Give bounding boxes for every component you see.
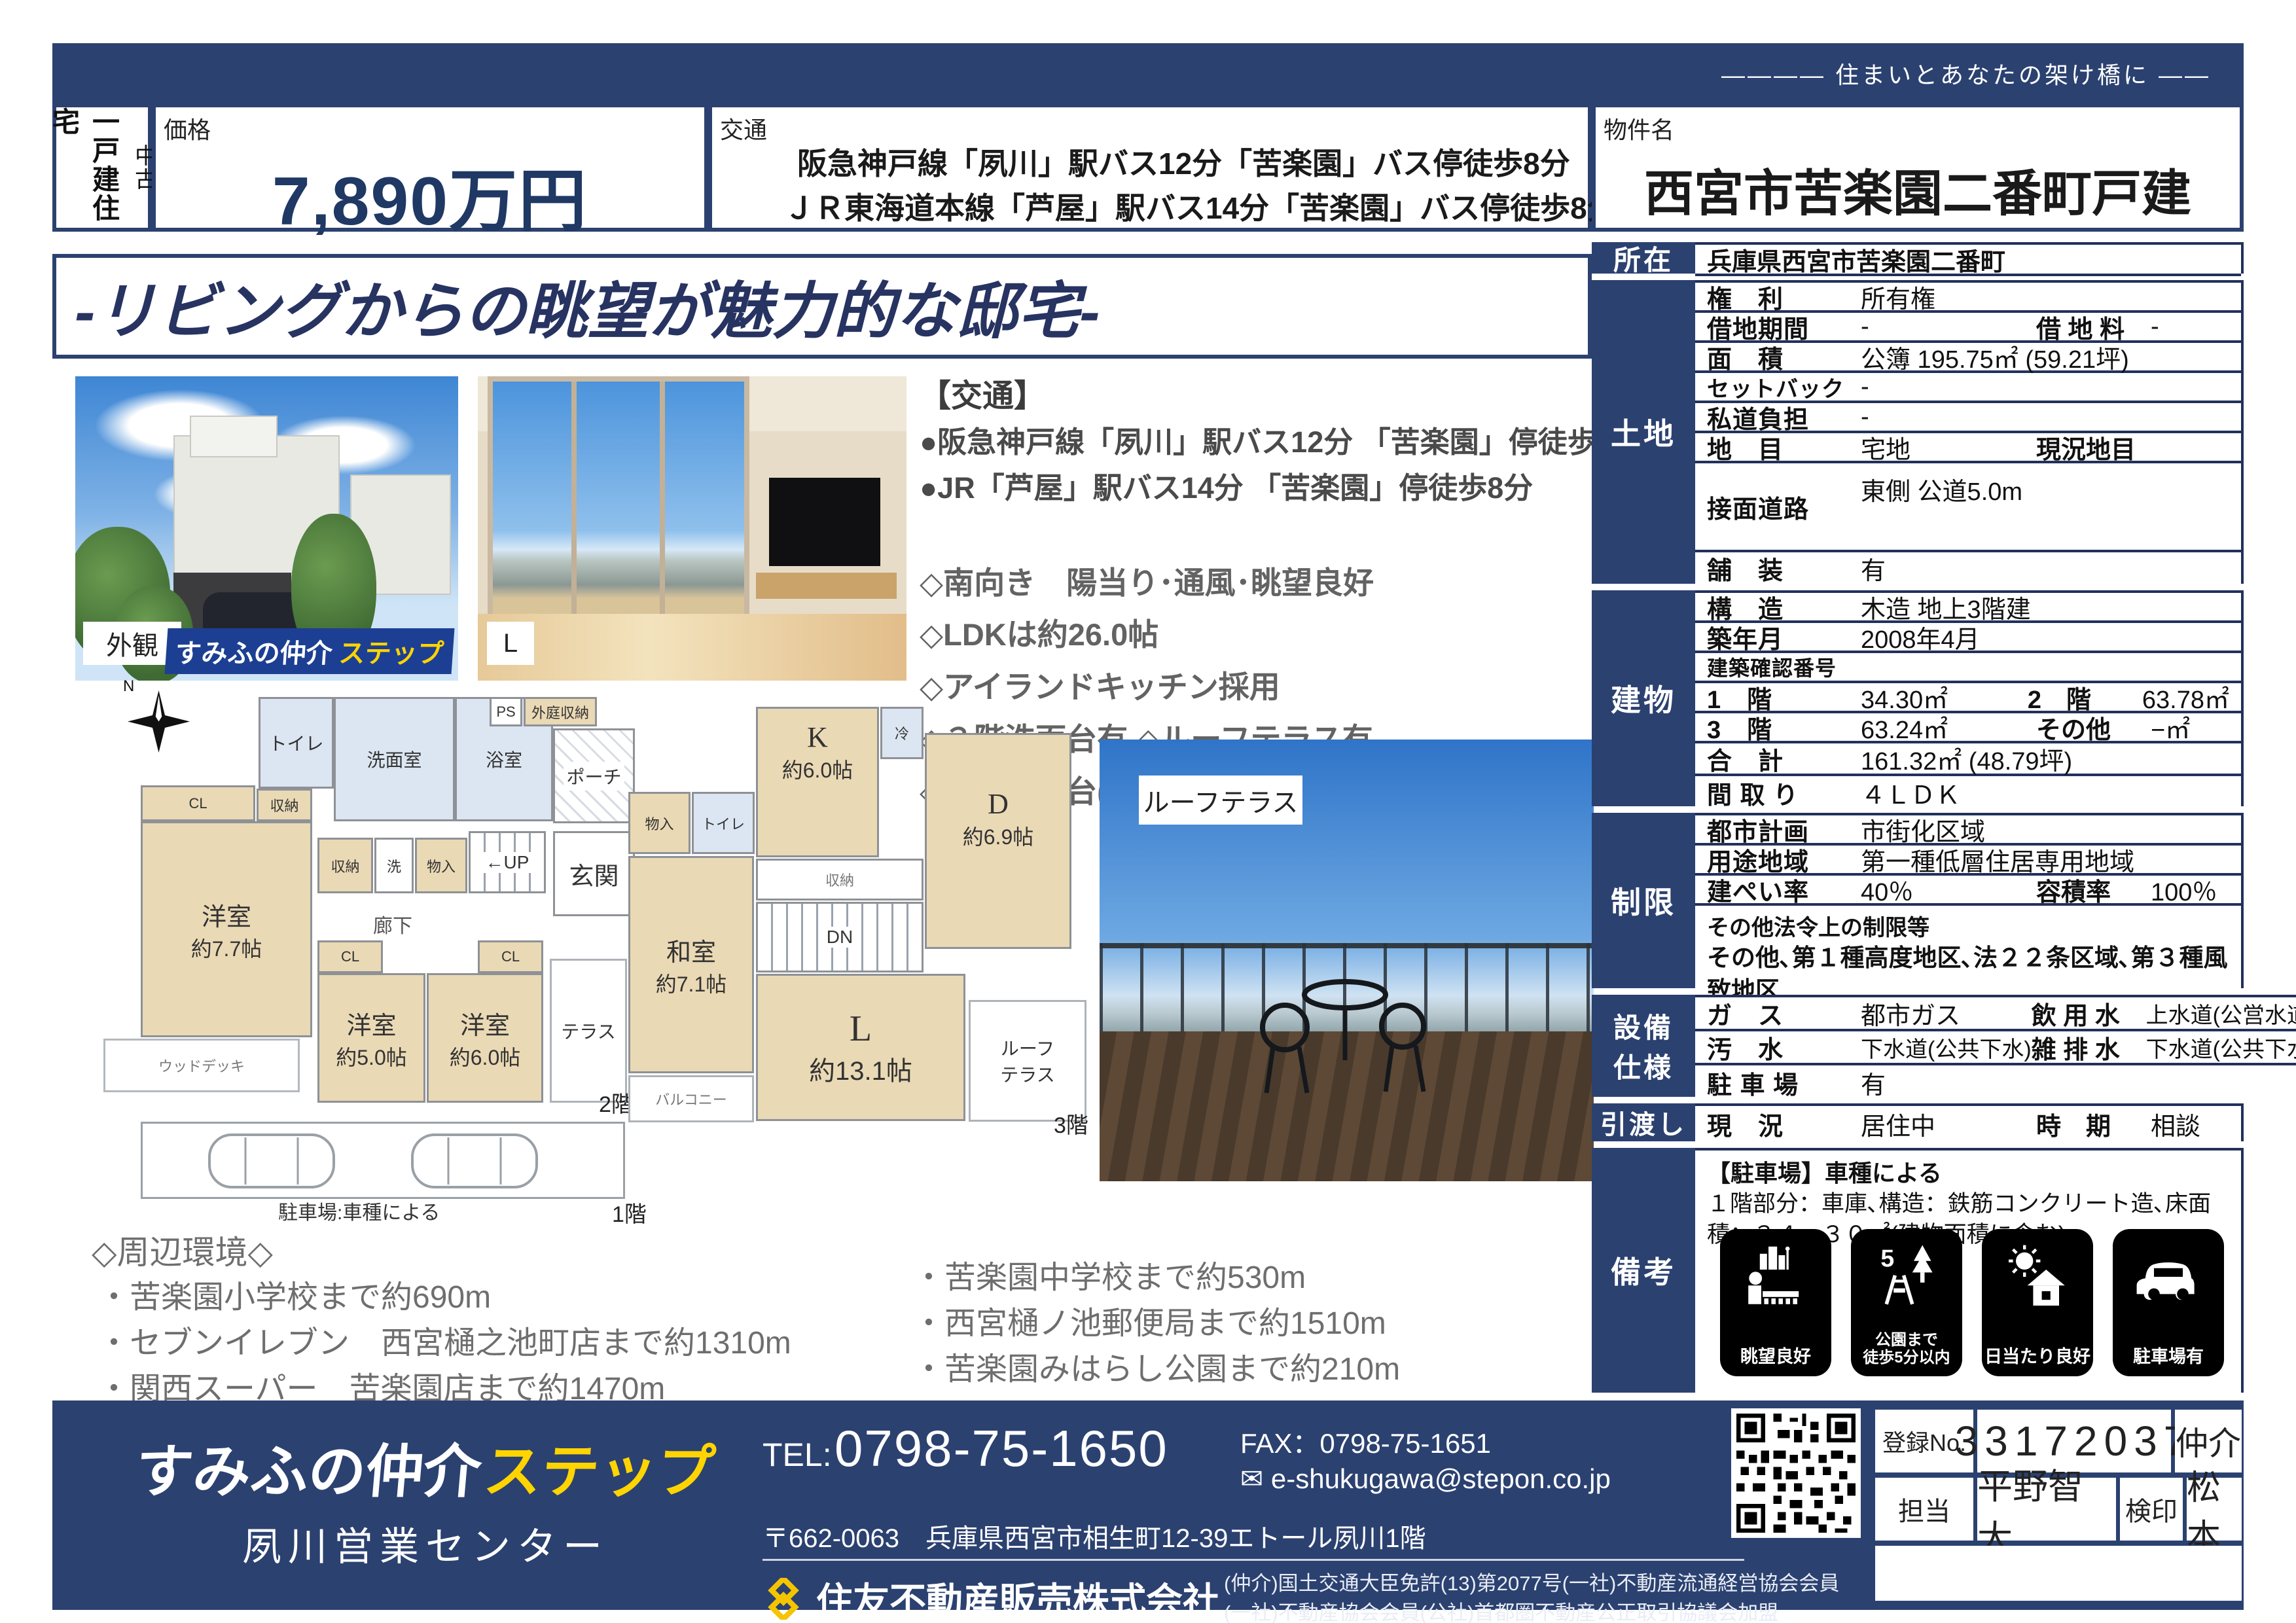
section-restrictions: 制限 都市計画市街化区域 用途地域第一種低層住居専用地域 建ぺい率40％容積率1…	[1592, 813, 2244, 988]
roof-caption-text: ルーフテラス	[1143, 781, 1299, 819]
property-name-label: 物件名	[1604, 111, 1674, 145]
price-value: 7,890万円	[156, 145, 704, 244]
price-label: 価格	[164, 111, 211, 145]
brand-watermark: すみふの仲介 ステップ	[165, 628, 455, 674]
wood-deck: ウッドデッキ	[103, 1039, 300, 1092]
section-label-handover: 引渡し	[1592, 1103, 1695, 1141]
feature-point: ◇LDKは約26.0帖	[920, 609, 1594, 661]
stamp-label: 検印	[2120, 1478, 2183, 1541]
surroundings-item: ・セブンイレブン 西宮樋之池町店まで約1310m	[98, 1321, 791, 1366]
surroundings-item: ・苦楽園小学校まで約690m	[98, 1275, 491, 1321]
access-line-2: ＪＲ東海道本線「芦屋」駅バス14分「苦楽園」バス停徒歩8分	[784, 185, 1617, 228]
remarks-line-1: 【駐車場】車種による	[1707, 1154, 2229, 1188]
stairs-down: DN	[756, 902, 924, 972]
window-mullion	[571, 382, 577, 652]
car-icon	[2132, 1241, 2204, 1313]
storage-mono-3f: 物入	[628, 792, 691, 854]
footer-address: 〒662-0063 兵庫県西宮市相生町12-39エトール夙川1階	[762, 1517, 1426, 1555]
car-top-icon	[200, 1128, 344, 1194]
details-table: 所在 兵庫県西宮市苦楽園二番町 土地 権 利所有権 借地期間-借 地 料- 面 …	[1592, 242, 2244, 1393]
headline-text: -リビングからの眺望が魅力的な邸宅-	[56, 262, 1100, 351]
view-icon	[1740, 1241, 1812, 1313]
tel-label: TEL:	[762, 1436, 832, 1473]
footer-brand-white: すみふの仲介	[133, 1439, 484, 1504]
sun-house-icon	[2001, 1241, 2073, 1313]
wood-floor	[478, 614, 906, 681]
access-line-1: 阪急神戸線「夙川」駅バス12分「苦楽園」バス停徒歩8分	[797, 140, 1570, 183]
room-western-7-7: 洋室約7.7帖	[141, 821, 312, 1037]
feature-point: ◇南向き 陽当り･通風･眺望良好	[920, 557, 1594, 609]
access-label: 交通	[720, 111, 767, 145]
features-access-item: ●阪急神戸線「夙川」駅バス12分 「苦楽園」停徒歩8分	[920, 419, 1594, 465]
laundry-box: 洗	[374, 838, 414, 893]
badge-park-nearby: 5 公園まで徒歩5分以内	[1851, 1229, 1962, 1376]
feature-point: ◇アイランドキッチン採用	[920, 661, 1594, 713]
surroundings-item: ・西宮樋ノ池郵便局まで約1510m	[913, 1301, 1386, 1347]
living-photo: L	[478, 376, 906, 681]
section-location: 所在 兵庫県西宮市苦楽園二番町	[1592, 242, 2244, 274]
terrace-2f: テラス	[550, 959, 627, 1103]
brand-watermark-yellow: ステップ	[338, 632, 445, 670]
closet-cl1: CL	[141, 785, 255, 821]
section-label-building: 建物	[1592, 590, 1695, 806]
empty-cell	[1875, 1546, 2242, 1601]
floorplan-3f: 物入 トイレ K 約6.0帖 冷 収納 D 約6.9帖 DN 和室約7.1帖 L…	[628, 707, 1100, 1129]
room-toilet-3f: トイレ	[692, 792, 755, 854]
storage-mono-2f: 物入	[415, 838, 467, 893]
features-access-item: ●JR「芦屋」駅バス14分 「苦楽園」停徒歩8分	[920, 465, 1594, 511]
room-entrance: 玄関	[553, 831, 635, 916]
living-caption: L	[487, 622, 534, 665]
agent-label: 担当	[1875, 1478, 1973, 1541]
badge-good-view: 眺望良好	[1720, 1229, 1831, 1376]
property-category-cell: 一戸建住宅 中古	[52, 103, 152, 232]
mail-icon: ✉	[1240, 1463, 1263, 1494]
closet-cl2: CL	[317, 940, 383, 973]
section-land: 土地 権 利所有権 借地期間-借 地 料- 面 積公簿 195.75㎡ (59.…	[1592, 280, 2244, 584]
refrigerator-space: 冷	[880, 707, 924, 759]
stamp-name: 松本	[2187, 1478, 2242, 1541]
room-japanese: 和室約7.1帖	[628, 856, 754, 1073]
section-utilities: 設備 仕様 ガ ス都市ガス飲 用 水上水道(公営水道) 汚 水下水道(公共下水)…	[1592, 995, 2244, 1097]
footer-tel: TEL: 0798-75-1650	[762, 1419, 1168, 1478]
tel-number: 0798-75-1650	[834, 1419, 1168, 1477]
room-kitchen: K 約6.0帖	[756, 707, 879, 857]
footer-brand: すみふの仲介 ステップ	[127, 1425, 723, 1508]
section-label-utilities-2: 仕様	[1613, 1046, 1674, 1086]
surroundings-item: ・苦楽園みはらし公園まで約210m	[913, 1347, 1400, 1393]
footer: すみふの仲介 ステップ 夙川営業センター TEL: 0798-75-1650 F…	[52, 1400, 2244, 1610]
room-western-5-0: 洋室約5.0帖	[317, 973, 425, 1103]
section-label-land: 土地	[1592, 280, 1695, 584]
flyer-page: ―――― 住まいとあなたの架け橋に ―― 一戸建住宅 中古 価格 7,890万円…	[0, 0, 2296, 1623]
floorplan-1f: 駐車場:車種による 1階	[115, 1113, 658, 1224]
footer-legal: (仲介)国土交通大臣免許(13)第2077号(一社)不動産流通経営協会会員 (一…	[1224, 1569, 1839, 1623]
top-band: ―――― 住まいとあなたの架け橋に ――	[52, 43, 2244, 103]
category-main: 一戸建住宅	[45, 107, 124, 228]
kitchen-counter: 収納	[756, 859, 924, 901]
storage-2: 収納	[317, 838, 373, 893]
stairs-up: ←UP	[469, 831, 546, 893]
access-cell: 交通 阪急神戸線「夙川」駅バス12分「苦楽園」バス停徒歩8分 ＪＲ東海道本線「芦…	[708, 103, 1592, 232]
section-building: 建物 構 造木造 地上3階建 築年月2008年4月 建築確認番号 1 階34.3…	[1592, 590, 2244, 806]
svg-text:5: 5	[1880, 1245, 1894, 1272]
qr-code-image	[1736, 1414, 1856, 1533]
car-top-icon	[403, 1128, 547, 1194]
section-handover: 引渡し 現 況居住中時 期相談	[1592, 1103, 2244, 1141]
exterior-photo: 外観 すみふの仲介 ステップ	[75, 376, 458, 681]
price-cell: 価格 7,890万円	[152, 103, 708, 232]
brand-watermark-white: すみふの仲介	[174, 632, 334, 670]
property-name-cell: 物件名 西宮市苦楽園二番町戸建	[1592, 103, 2244, 232]
roof-terrace-plan: ルーフテラス	[969, 1000, 1086, 1122]
hallway-label: 廊下	[373, 910, 412, 938]
floor-label-3f: 3階	[1054, 1107, 1088, 1139]
tv	[769, 478, 880, 566]
badge-parking: 駐車場有	[2113, 1229, 2224, 1376]
storage-1: 収納	[257, 789, 312, 821]
room-dining: D 約6.9帖	[925, 733, 1071, 949]
roof-terrace-photo: ルーフテラス	[1100, 740, 1594, 1181]
room-toilet-2f: トイレ	[259, 697, 334, 789]
surroundings-title: ◇周辺環境◇	[92, 1229, 273, 1277]
footer-divider	[762, 1559, 1744, 1561]
legal-line-1: (仲介)国土交通大臣免許(13)第2077号(一社)不動産流通経営協会会員	[1224, 1569, 1839, 1599]
room-ps: PS	[490, 697, 522, 726]
roof-caption: ルーフテラス	[1139, 776, 1302, 825]
footer-office-name: 夙川営業センター	[131, 1515, 720, 1572]
company-name: 住友不動産販売株式会社	[816, 1572, 1219, 1623]
exterior-caption-text: 外観	[106, 624, 158, 662]
email-address: e-shukugawa@stepon.co.jp	[1271, 1463, 1611, 1494]
garage-label: 駐車場:車種による	[278, 1196, 440, 1225]
section-label-remarks: 備考	[1592, 1148, 1695, 1393]
property-name: 西宮市苦楽園二番町戸建	[1596, 153, 2240, 225]
location-value: 兵庫県西宮市苦楽園二番町	[1707, 241, 2005, 277]
room-outer-storage: 外庭収納	[524, 697, 597, 726]
features-access-title: 【交通】	[920, 370, 1594, 416]
window-mullion	[660, 382, 665, 652]
room-porch: ポーチ	[553, 728, 635, 823]
footer-company: 住友不動産販売株式会社	[762, 1572, 1219, 1623]
section-label-utilities-1: 設備	[1613, 1006, 1674, 1046]
tv-board	[756, 573, 897, 599]
compass-n: N	[123, 677, 134, 696]
headline-box: -リビングからの眺望が魅力的な邸宅-	[52, 254, 1592, 359]
compass-icon	[128, 690, 190, 753]
room-living: L 約13.1帖	[756, 974, 965, 1121]
terrace-furniture	[1247, 949, 1443, 1099]
surroundings-item: ・苦楽園中学校まで約530m	[913, 1255, 1306, 1301]
house-roof-terrace	[190, 416, 278, 457]
badge-sunny: 日当たり良好	[1982, 1229, 2093, 1376]
floorplan-2f: N トイレ 洗面室 浴室 PS 外庭収納 ポーチ CL 収納 洋室約7.7帖 収…	[92, 697, 635, 1109]
park-icon: 5	[1871, 1241, 1943, 1313]
company-tagline: ―――― 住まいとあなたの架け橋に ――	[1721, 56, 2244, 90]
footer-brand-yellow: ステップ	[481, 1439, 717, 1504]
sumitomo-logo-icon	[762, 1578, 804, 1620]
legal-line-2: (一社)不動産協会会員(公社)首都圏不動産公正取引協議会加盟	[1224, 1599, 1839, 1623]
agent-name: 平野智大	[1977, 1478, 2116, 1541]
room-western-6-0: 洋室約6.0帖	[427, 973, 543, 1103]
section-label-restrictions: 制限	[1592, 813, 1695, 988]
section-label-location: 所在	[1592, 242, 1695, 274]
room-washroom-2f: 洗面室	[334, 697, 455, 821]
qr-code	[1731, 1408, 1861, 1538]
floor-label-1f: 1階	[612, 1196, 647, 1228]
footer-email: ✉ e-shukugawa@stepon.co.jp	[1240, 1463, 1611, 1495]
closet-cl3: CL	[478, 940, 543, 973]
footer-fax: FAX：0798-75-1651	[1240, 1421, 1491, 1461]
living-caption-text: L	[503, 629, 518, 658]
